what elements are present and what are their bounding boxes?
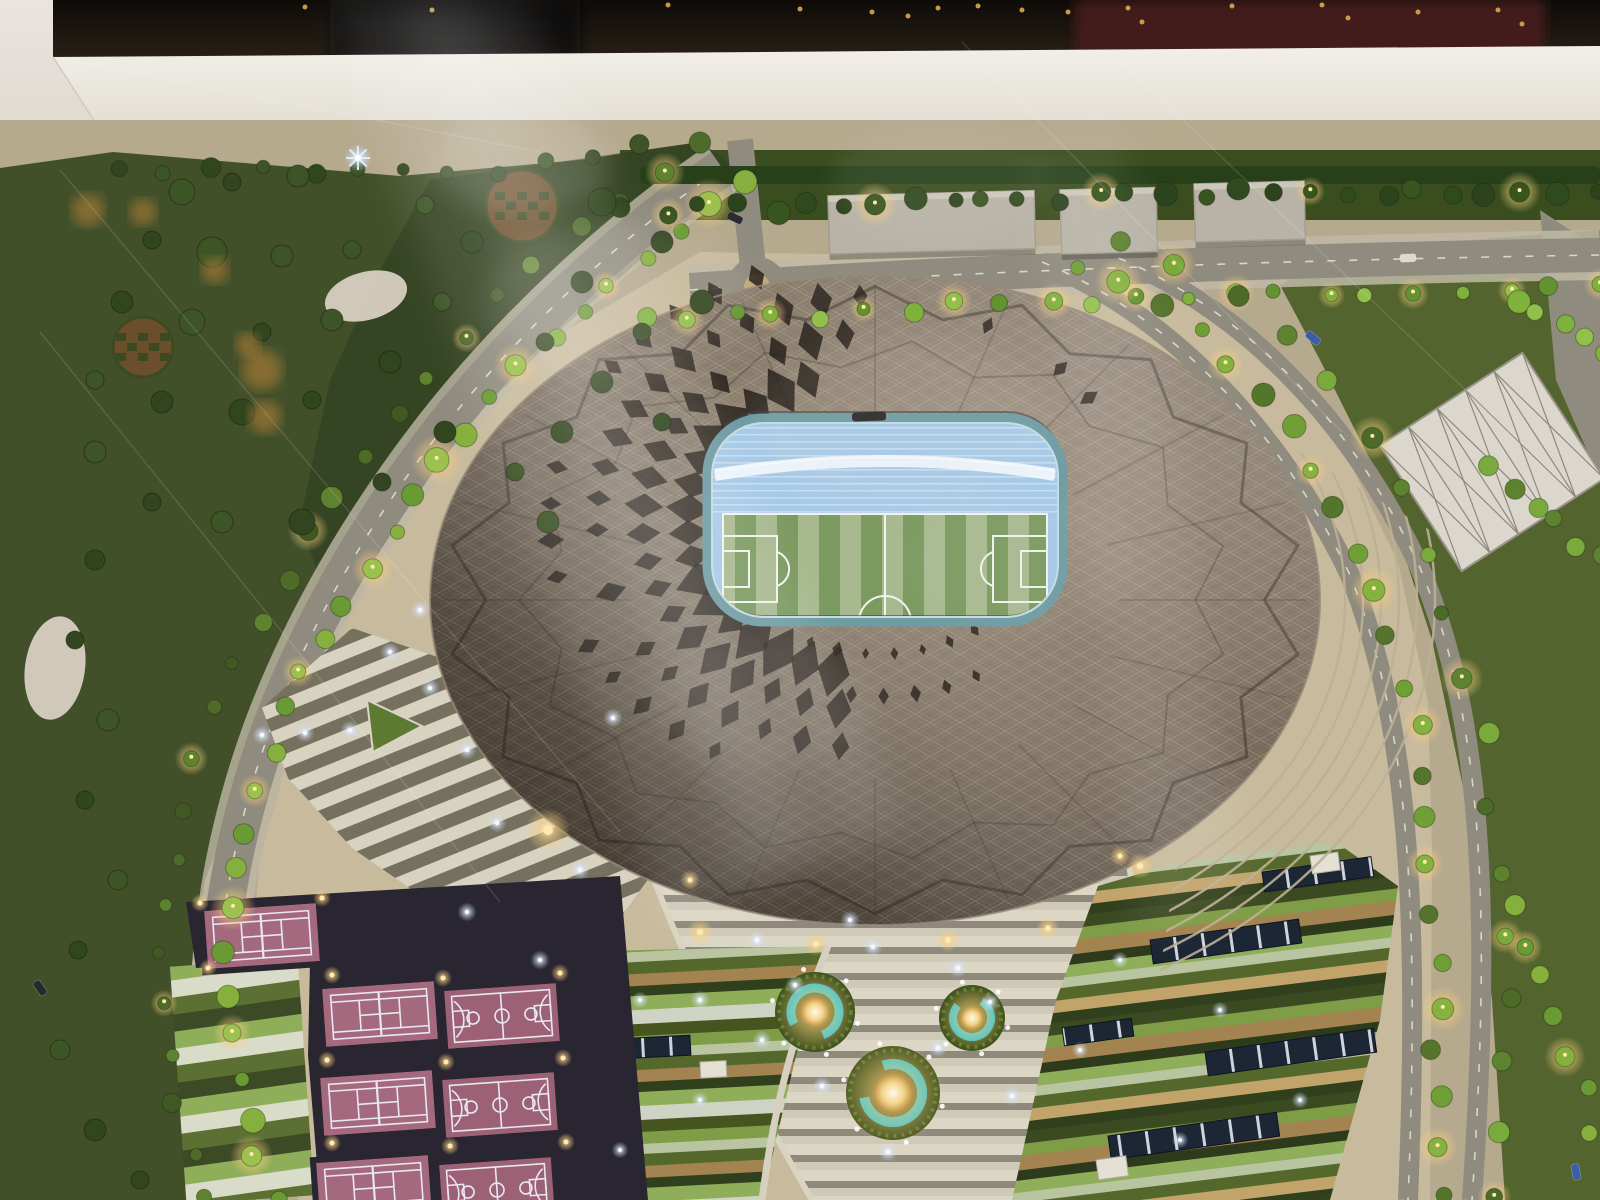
tree xyxy=(152,947,164,959)
cool-light xyxy=(388,650,392,654)
street-lamp xyxy=(1460,674,1464,678)
street-lamp xyxy=(1423,860,1427,864)
tree xyxy=(1581,1080,1597,1096)
ceiling-dot xyxy=(1126,6,1131,11)
street-lamp xyxy=(952,297,956,301)
plot-square xyxy=(116,353,126,361)
tree xyxy=(1557,315,1575,333)
street-lamp xyxy=(162,999,166,1003)
plot-square xyxy=(138,353,148,361)
park-tree xyxy=(434,421,456,443)
tree xyxy=(316,630,335,649)
park-tree xyxy=(86,371,104,389)
cool-light xyxy=(260,733,264,737)
tree xyxy=(190,1149,202,1161)
basket-court xyxy=(433,1151,562,1200)
tree xyxy=(1531,966,1549,984)
tree xyxy=(689,196,704,211)
tree xyxy=(155,166,170,181)
cool-light xyxy=(956,966,960,970)
stadium-model-photo xyxy=(0,0,1600,1200)
tree xyxy=(1420,905,1438,923)
cool-light xyxy=(495,821,499,825)
cool-light xyxy=(1298,1098,1302,1102)
tree xyxy=(1376,626,1395,645)
tree xyxy=(162,1093,181,1112)
tree xyxy=(291,664,306,679)
warm-light xyxy=(945,937,950,942)
tree xyxy=(1544,1007,1563,1026)
tree xyxy=(1421,1040,1441,1060)
park-tree xyxy=(287,165,309,187)
tree xyxy=(1416,855,1434,873)
tree xyxy=(225,657,238,670)
tree xyxy=(1452,668,1473,689)
warm-light xyxy=(813,941,818,946)
street-lamp xyxy=(296,667,300,671)
tree xyxy=(1494,866,1510,882)
tree xyxy=(276,697,295,716)
tree xyxy=(402,484,424,506)
pavilion xyxy=(1096,1156,1128,1180)
tree xyxy=(307,164,326,183)
park-tree xyxy=(66,631,84,649)
tree xyxy=(689,132,710,153)
cool-light xyxy=(303,731,307,735)
cool-light xyxy=(988,1000,992,1004)
cool-light xyxy=(820,1084,824,1088)
tree xyxy=(1266,284,1280,298)
orange-reflection-blob xyxy=(202,257,228,283)
cool-light xyxy=(1010,1094,1014,1098)
street-lamp xyxy=(1518,188,1522,192)
court-lamp xyxy=(441,976,446,981)
cool-light xyxy=(1218,1008,1222,1012)
tree xyxy=(166,1049,179,1062)
tree xyxy=(1363,579,1385,601)
sparkle-core xyxy=(355,155,361,161)
park-tree xyxy=(69,941,87,959)
court-lamp xyxy=(444,1060,449,1065)
cool-light xyxy=(1178,1138,1182,1142)
street-lamp xyxy=(231,904,235,908)
tree xyxy=(795,192,816,213)
ceiling-dot xyxy=(1320,3,1325,8)
checkered-plot xyxy=(113,317,173,377)
tree xyxy=(158,997,171,1010)
tree xyxy=(1434,606,1448,620)
tree xyxy=(201,158,221,178)
tree xyxy=(175,803,192,820)
tree xyxy=(1349,544,1368,563)
fountain-spot-light xyxy=(855,1021,860,1026)
tree xyxy=(1546,182,1569,205)
tree xyxy=(655,163,674,182)
fountain-spot-light xyxy=(770,998,775,1003)
tree xyxy=(212,941,235,964)
plot-square xyxy=(116,333,126,341)
ceiling-dot xyxy=(870,10,875,15)
street-lamp xyxy=(1370,434,1374,438)
tree xyxy=(173,854,185,866)
fountain-spot-light xyxy=(1005,1025,1010,1030)
tree xyxy=(1478,456,1498,476)
ceiling-dot xyxy=(798,7,803,12)
cool-light xyxy=(698,1098,702,1102)
street-lamp xyxy=(1411,289,1415,293)
fountain-spot-light xyxy=(960,980,965,985)
tree xyxy=(1444,186,1462,204)
tree xyxy=(1527,304,1543,320)
basket-court xyxy=(438,977,567,1055)
lamp-sparkle xyxy=(344,144,372,172)
cool-light xyxy=(578,868,582,872)
tree xyxy=(1414,767,1432,785)
ceiling-dot xyxy=(1416,10,1421,15)
street-lamp xyxy=(707,200,711,204)
park-tree xyxy=(379,351,401,373)
park-tree xyxy=(303,391,321,409)
haze-blob xyxy=(755,337,1055,513)
warm-light xyxy=(697,929,703,935)
street-lamp xyxy=(1436,1143,1440,1147)
ceiling-dot xyxy=(1230,4,1235,9)
tennis-court xyxy=(314,1064,443,1142)
fountain-dome-light xyxy=(800,997,830,1027)
tree xyxy=(1217,356,1234,373)
tree xyxy=(267,744,286,763)
tree xyxy=(1421,547,1436,562)
fountain-spot-light xyxy=(841,1077,846,1082)
ceiling-dot xyxy=(666,3,671,8)
tree xyxy=(207,700,222,715)
tree xyxy=(1434,954,1451,971)
street-lamp xyxy=(862,305,866,309)
cool-light xyxy=(793,983,797,987)
street-lamp xyxy=(1309,467,1313,471)
tree xyxy=(1405,286,1420,301)
park-tree xyxy=(211,511,233,533)
plot-square xyxy=(160,333,170,341)
fountain-dome-light xyxy=(873,1073,913,1113)
fountain-spot-light xyxy=(940,1104,945,1109)
park-tree xyxy=(76,791,94,809)
street-lamp xyxy=(1372,586,1376,590)
fountain-spot-light xyxy=(927,1054,932,1059)
street-lamp xyxy=(1441,1005,1445,1009)
tree xyxy=(1488,1121,1509,1142)
street-lamp xyxy=(371,565,375,569)
ceiling-dot xyxy=(1346,16,1351,21)
park-tree xyxy=(321,309,343,331)
tree xyxy=(1322,496,1344,518)
plot-square xyxy=(138,333,148,341)
warm-light xyxy=(543,825,553,835)
court-lamp xyxy=(561,1056,566,1061)
court-lamp xyxy=(198,901,203,906)
cool-light xyxy=(465,748,469,752)
tree xyxy=(1414,806,1435,827)
street-lamp xyxy=(1421,721,1425,725)
tree xyxy=(1199,189,1215,205)
street-lamp xyxy=(230,1029,234,1033)
ceiling-dot xyxy=(1020,8,1025,13)
tree xyxy=(321,487,343,509)
tree xyxy=(1154,182,1178,206)
tree xyxy=(1566,538,1585,557)
tennis-court xyxy=(310,1149,439,1200)
park-tree xyxy=(289,509,315,535)
tree xyxy=(111,161,127,177)
fountain-spot-light xyxy=(801,967,806,972)
tree xyxy=(1581,1125,1597,1141)
cool-light xyxy=(871,945,875,949)
tree xyxy=(1505,895,1526,916)
car xyxy=(1400,254,1416,263)
park-tree xyxy=(179,309,205,335)
street-lamp xyxy=(250,1152,254,1156)
cool-light xyxy=(936,1046,940,1050)
street-lamp xyxy=(189,755,193,759)
tree xyxy=(728,194,747,213)
park-tree xyxy=(84,1119,106,1141)
tennis-court-surface xyxy=(316,1155,432,1200)
tree xyxy=(1283,414,1307,438)
court-lamp xyxy=(206,966,211,971)
tree xyxy=(945,292,963,310)
fountain-spot-light xyxy=(844,978,849,983)
tennis-court xyxy=(316,975,445,1053)
tree xyxy=(331,596,351,616)
tree xyxy=(1510,182,1530,202)
park-tree xyxy=(169,179,195,205)
tree xyxy=(1477,798,1494,815)
tree xyxy=(280,570,300,590)
tree xyxy=(1252,383,1275,406)
street-lamp xyxy=(1523,943,1527,947)
tree xyxy=(1357,288,1372,303)
street-lamp xyxy=(435,456,439,460)
tree xyxy=(358,449,373,464)
street-lamp xyxy=(1563,1053,1567,1057)
cool-light xyxy=(618,1148,622,1152)
court-lamp xyxy=(330,1141,335,1146)
park-tree xyxy=(97,709,119,731)
pavilion xyxy=(700,1061,727,1078)
basket-court-surface xyxy=(442,1072,558,1138)
park-tree xyxy=(151,391,173,413)
ceiling-dot xyxy=(906,14,911,19)
tree xyxy=(762,306,778,322)
park-tree xyxy=(84,441,106,463)
tree xyxy=(256,160,270,174)
tree xyxy=(160,899,172,911)
tree xyxy=(1195,323,1209,337)
tree xyxy=(1545,510,1562,527)
cool-light xyxy=(848,918,852,922)
court-lamp xyxy=(564,1140,569,1145)
tree xyxy=(390,525,404,539)
park-tree xyxy=(131,1171,149,1189)
park-tree xyxy=(85,550,105,570)
court-lamp xyxy=(448,1144,453,1149)
tree xyxy=(904,303,923,322)
fountain xyxy=(841,1041,945,1145)
cool-light xyxy=(760,1038,764,1042)
tree xyxy=(196,1189,211,1200)
tree xyxy=(241,1108,266,1133)
orange-reflection-blob xyxy=(72,194,104,226)
cool-light xyxy=(1078,1048,1082,1052)
park-tree xyxy=(143,493,161,511)
plot-square xyxy=(149,343,159,351)
tree xyxy=(391,405,408,422)
tree xyxy=(1151,294,1174,317)
tree xyxy=(226,858,247,879)
tree xyxy=(1182,292,1194,304)
tree xyxy=(1380,186,1399,205)
fountain-spot-light xyxy=(934,1006,939,1011)
warm-light xyxy=(1118,854,1123,859)
tree xyxy=(1479,723,1500,744)
plot-square xyxy=(127,343,137,351)
ceiling-dot xyxy=(976,4,981,9)
tree xyxy=(1265,184,1283,202)
court-lamp xyxy=(558,971,563,976)
tree xyxy=(1163,254,1184,275)
tree xyxy=(419,372,433,386)
tree xyxy=(1362,427,1383,448)
ceiling-dot xyxy=(1066,10,1071,15)
ceiling-dot xyxy=(1496,8,1501,13)
park-tree xyxy=(111,291,133,313)
cool-light xyxy=(428,686,432,690)
street-lamp xyxy=(1330,291,1334,295)
orange-reflection-blob xyxy=(130,199,156,225)
tree xyxy=(363,559,383,579)
cool-light xyxy=(698,998,702,1002)
ceiling-dot xyxy=(936,6,941,11)
fountain-spot-light xyxy=(979,1051,984,1056)
tree xyxy=(1393,480,1410,497)
fountain-spot-light xyxy=(996,989,1001,994)
cool-light xyxy=(538,958,542,962)
court-lamp xyxy=(325,1058,330,1063)
tree xyxy=(733,170,757,194)
street-lamp xyxy=(1492,1193,1496,1197)
tennis-court-surface xyxy=(320,1070,436,1136)
tree xyxy=(217,985,240,1008)
cool-light xyxy=(638,998,642,1002)
tree xyxy=(1428,1138,1447,1157)
tree xyxy=(1277,325,1297,345)
park-tree xyxy=(343,241,361,259)
basket-court-surface xyxy=(444,983,560,1049)
street-lamp xyxy=(253,787,257,791)
tree xyxy=(1431,1086,1452,1107)
haze-blob xyxy=(830,125,1050,235)
tree xyxy=(630,135,649,154)
orange-reflection-blob xyxy=(236,333,260,357)
street-lamp xyxy=(1503,932,1507,936)
street-lamp xyxy=(663,168,667,172)
tree xyxy=(767,201,791,225)
warm-light xyxy=(1045,925,1050,930)
tree xyxy=(1317,370,1337,390)
tree xyxy=(1436,1187,1452,1200)
tree xyxy=(241,1146,262,1167)
cool-light xyxy=(418,608,422,612)
park-tree xyxy=(271,245,293,267)
tree xyxy=(184,751,200,767)
cool-light xyxy=(1118,958,1122,962)
tree xyxy=(1341,188,1356,203)
fountain-dome-light xyxy=(960,1006,984,1030)
fountain-spot-light xyxy=(854,1127,859,1132)
tree xyxy=(1396,680,1413,697)
street-lamp xyxy=(1308,187,1312,191)
street-lamp xyxy=(666,211,670,215)
tree xyxy=(1228,286,1249,307)
court-lamp xyxy=(330,973,335,978)
street-lamp xyxy=(1224,360,1228,364)
tree xyxy=(1325,289,1338,302)
tree xyxy=(1539,277,1558,296)
tree xyxy=(235,1072,249,1086)
tree xyxy=(1472,183,1495,206)
basket-court xyxy=(436,1066,565,1144)
fountain-spot-light xyxy=(904,1140,909,1145)
fountain-spot-light xyxy=(877,1041,882,1046)
tree xyxy=(1576,328,1594,346)
cool-light xyxy=(886,1150,890,1154)
tree xyxy=(1492,1051,1512,1071)
ceiling-dot xyxy=(1140,20,1145,25)
tree xyxy=(990,295,1007,312)
fountain-spot-light xyxy=(824,1052,829,1057)
street-lamp xyxy=(1510,287,1514,291)
park-tree xyxy=(223,173,241,191)
park-tree xyxy=(373,473,391,491)
tree xyxy=(811,311,828,328)
fountain-spot-light xyxy=(781,1041,786,1046)
court-lamp xyxy=(320,896,325,901)
cool-light xyxy=(465,910,469,914)
tree xyxy=(1432,998,1454,1020)
tennis-court-surface xyxy=(322,981,438,1047)
ceiling-dot xyxy=(1520,22,1525,27)
orange-reflection-blob xyxy=(249,401,281,433)
cool-light xyxy=(755,938,759,942)
plot-square xyxy=(160,353,170,361)
park-tree xyxy=(108,870,128,890)
tree xyxy=(233,824,254,845)
cool-light xyxy=(348,728,352,732)
ceiling-dot xyxy=(303,5,308,10)
tree xyxy=(1457,286,1470,299)
street-lamp xyxy=(768,310,772,314)
tree xyxy=(453,423,477,447)
model-scene-svg xyxy=(0,0,1600,1200)
tree xyxy=(1502,989,1521,1008)
tree xyxy=(1505,479,1525,499)
tree xyxy=(1402,180,1421,199)
park-tree xyxy=(50,1040,70,1060)
park-tree xyxy=(143,231,161,249)
